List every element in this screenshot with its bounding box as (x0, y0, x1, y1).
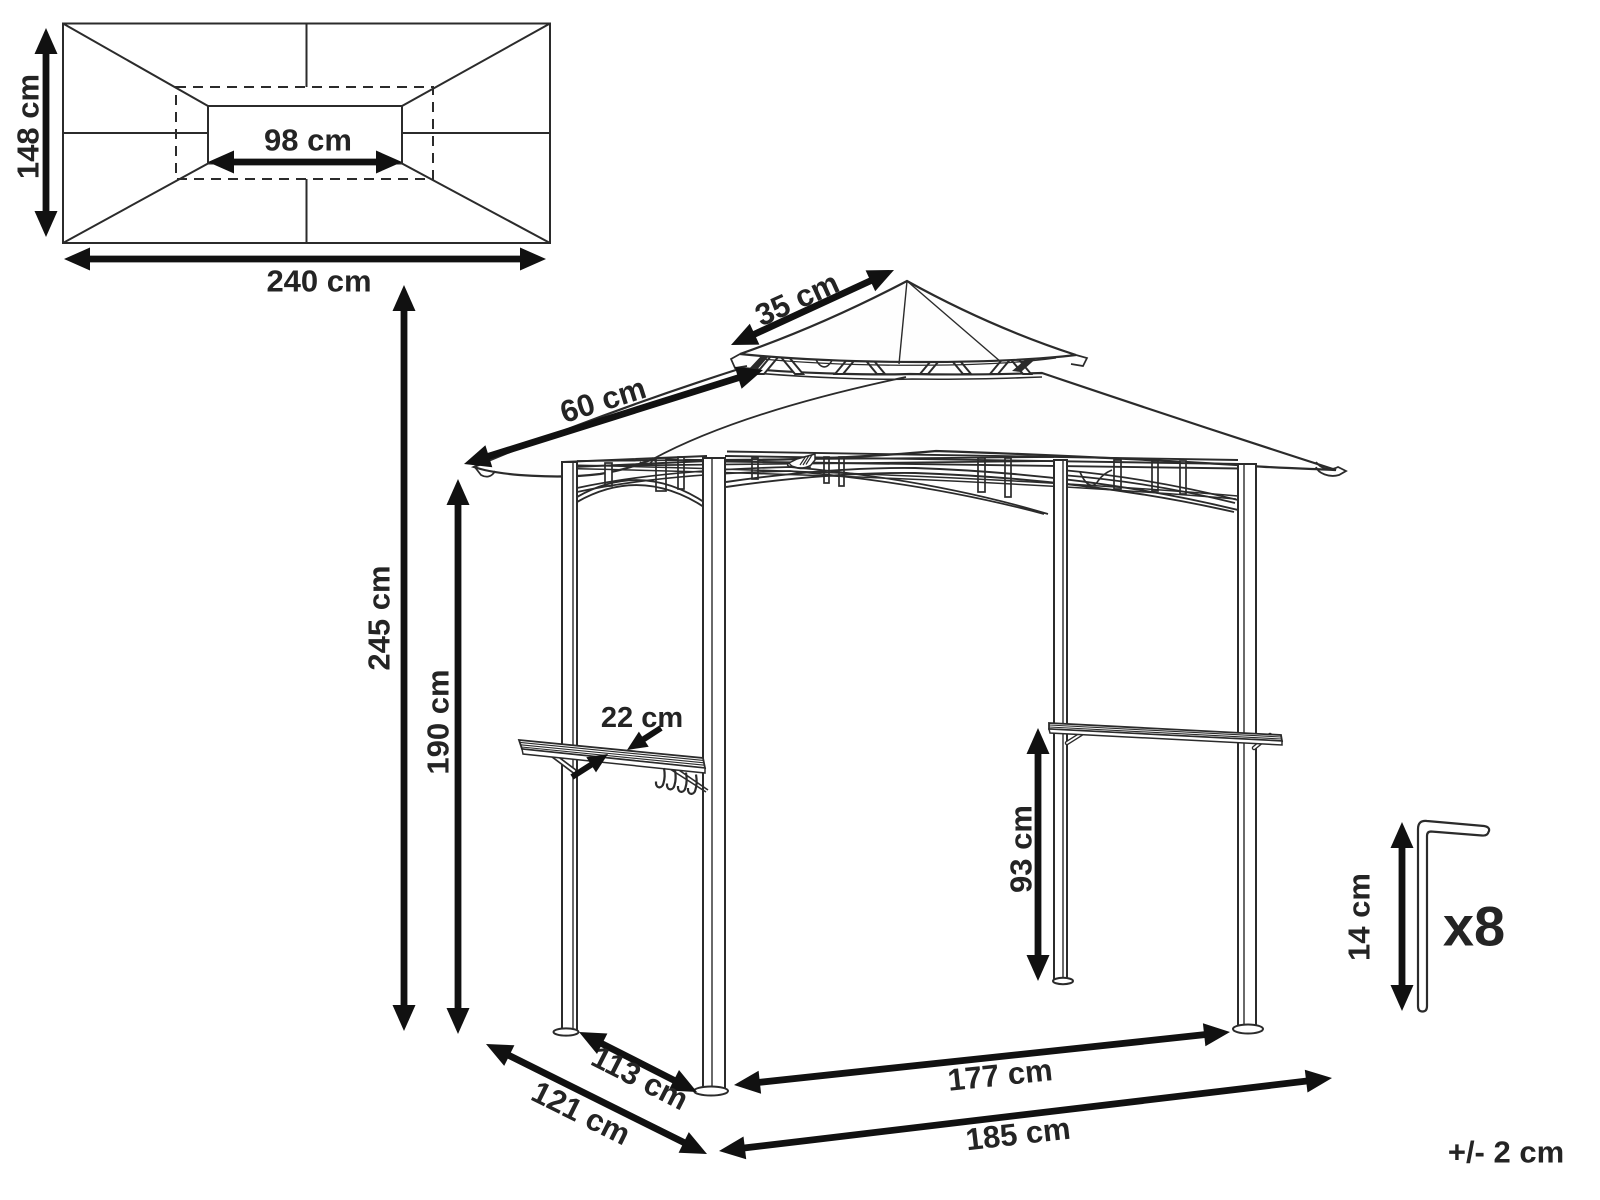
svg-text:+/- 2 cm: +/- 2 cm (1448, 1135, 1564, 1170)
svg-text:148 cm: 148 cm (11, 74, 46, 179)
svg-text:22 cm: 22 cm (601, 702, 683, 734)
svg-text:x8: x8 (1443, 895, 1505, 958)
svg-text:240 cm: 240 cm (266, 264, 371, 299)
svg-text:14 cm: 14 cm (1342, 873, 1377, 961)
svg-text:190 cm: 190 cm (421, 669, 456, 774)
svg-text:93 cm: 93 cm (1004, 805, 1039, 893)
svg-text:245 cm: 245 cm (362, 565, 397, 670)
svg-text:98 cm: 98 cm (264, 123, 352, 158)
